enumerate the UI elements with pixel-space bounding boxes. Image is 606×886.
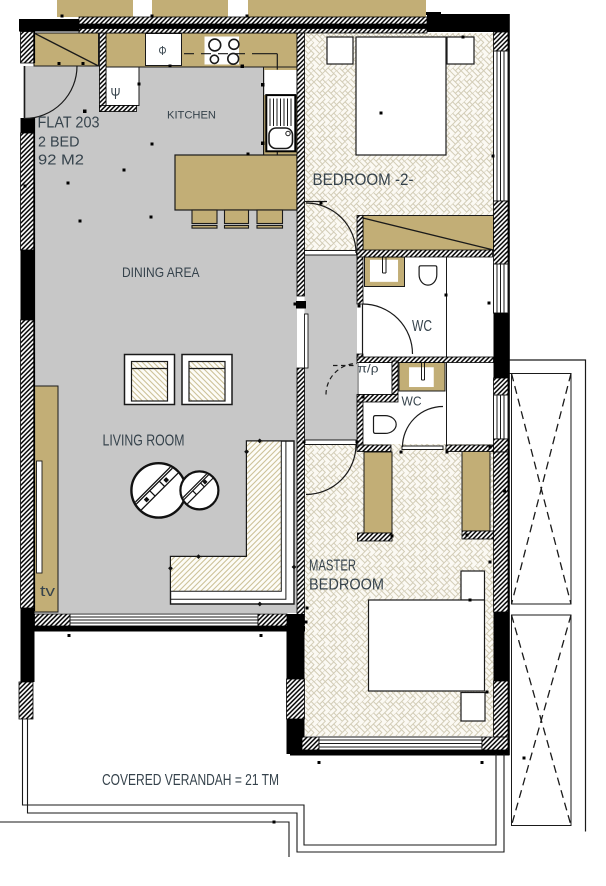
svg-text:BEDROOM -2-: BEDROOM -2-: [313, 171, 414, 189]
svg-text:WC: WC: [412, 318, 432, 335]
svg-text:KITCHEN: KITCHEN: [167, 110, 216, 122]
svg-text:FLAT 203: FLAT 203: [38, 115, 100, 132]
svg-text:COVERED VERANDAH = 21 TM: COVERED VERANDAH = 21 TM: [102, 772, 279, 789]
svg-text:2 BED: 2 BED: [38, 134, 80, 151]
svg-text:MASTER: MASTER: [309, 558, 356, 575]
svg-text:Ψ: Ψ: [111, 86, 121, 103]
svg-text:WC: WC: [402, 394, 422, 409]
svg-text:Φ: Φ: [159, 43, 167, 58]
svg-text:tv: tv: [40, 583, 56, 600]
svg-text:DINING AREA: DINING AREA: [122, 264, 200, 280]
svg-text:92 M2: 92 M2: [38, 152, 84, 169]
svg-text:BEDROOM: BEDROOM: [309, 577, 384, 594]
svg-text:π/ρ: π/ρ: [358, 362, 379, 376]
svg-text:LIVING ROOM: LIVING ROOM: [103, 433, 185, 450]
